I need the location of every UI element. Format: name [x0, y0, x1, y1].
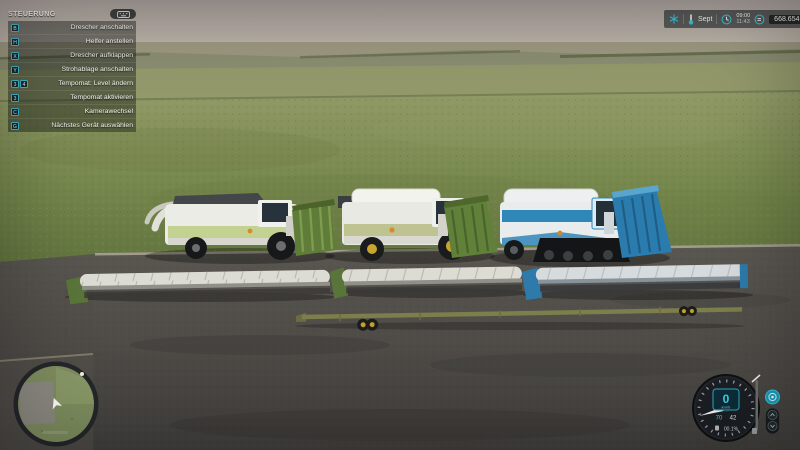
- thermometer-icon: [688, 14, 694, 25]
- help-item-label: Helfer anstellen: [86, 38, 133, 45]
- clock-icon: [721, 14, 732, 25]
- help-item: 3 Tempomat aktivieren: [8, 90, 136, 104]
- minimap-yard-area: [19, 381, 55, 425]
- key-badge: Y: [11, 66, 19, 74]
- help-item: Y Strohablage anschalten: [8, 62, 136, 76]
- keyboard-icon: [117, 11, 130, 18]
- help-item-label: Nächstes Gerät auswählen: [51, 122, 133, 129]
- minimap: [12, 361, 100, 449]
- help-item-label: Strohablage anschalten: [62, 66, 133, 73]
- hud-button-group: [766, 408, 780, 434]
- time-secondary: 11:43: [736, 19, 750, 25]
- separator: [716, 14, 717, 24]
- help-item: H Helfer anstellen: [8, 34, 136, 48]
- help-item-label: Drescher aufklappen: [70, 52, 133, 59]
- help-item: X Drescher aufklappen: [8, 48, 136, 62]
- hud-button-up[interactable]: [768, 410, 777, 419]
- game-screen: STEUERUNG B Drescher anschalten H Helfer…: [0, 0, 800, 450]
- speed-unit: km/h: [722, 405, 731, 410]
- help-item-label: Kamerawechsel: [85, 108, 133, 115]
- key-badge: X: [11, 52, 19, 60]
- help-item: C Kamerawechsel: [8, 104, 136, 118]
- key-badge: 4: [20, 80, 28, 88]
- key-badge: 3: [11, 94, 19, 102]
- help-item: B Drescher anschalten: [8, 21, 136, 34]
- help-toggle-button[interactable]: [110, 9, 136, 19]
- separator: [683, 14, 684, 24]
- help-item-list: B Drescher anschalten H Helfer anstellen…: [8, 21, 136, 132]
- help-panel-title: STEUERUNG: [8, 11, 56, 18]
- cruise-speed-value: 70: [716, 416, 723, 422]
- controls-help-panel: STEUERUNG B Drescher anschalten H Helfer…: [8, 8, 136, 132]
- fuel-pump-icon: [752, 428, 757, 434]
- snowflake-icon: [669, 14, 679, 24]
- fuel-icon: [715, 426, 719, 431]
- key-badge: 3: [11, 80, 19, 88]
- help-item: 3 4 Tempomat: Level ändern: [8, 76, 136, 90]
- key-badge: B: [11, 24, 19, 32]
- help-item-label: Tempomat: Level ändern: [58, 80, 133, 87]
- hud-button-cruise[interactable]: [766, 390, 780, 404]
- status-bar: Sept 09:00 11:43 668.654.638: [664, 10, 800, 28]
- key-badge: C: [11, 108, 19, 116]
- gauge-secondary-value: 42: [730, 416, 737, 422]
- time-display: 09:00 11:43: [736, 13, 750, 25]
- key-badge: G: [11, 122, 19, 130]
- hud-button-down[interactable]: [768, 421, 777, 430]
- map-waypoint-icon: [80, 372, 84, 376]
- help-item-label: Tempomat aktivieren: [70, 94, 133, 101]
- help-item: G Nächstes Gerät auswählen: [8, 118, 136, 132]
- fuel-level-value: 00.1%: [724, 427, 739, 433]
- key-badge: H: [11, 38, 19, 46]
- month-label: Sept: [698, 16, 712, 23]
- help-item-label: Drescher anschalten: [71, 24, 133, 31]
- vehicle-hud: 0 km/h 70 42 00.1%: [686, 370, 782, 448]
- speed-gauge: 0 km/h 70 42 00.1%: [693, 375, 759, 441]
- currency-icon: [754, 14, 765, 25]
- money-display: 668.654.638: [769, 15, 800, 24]
